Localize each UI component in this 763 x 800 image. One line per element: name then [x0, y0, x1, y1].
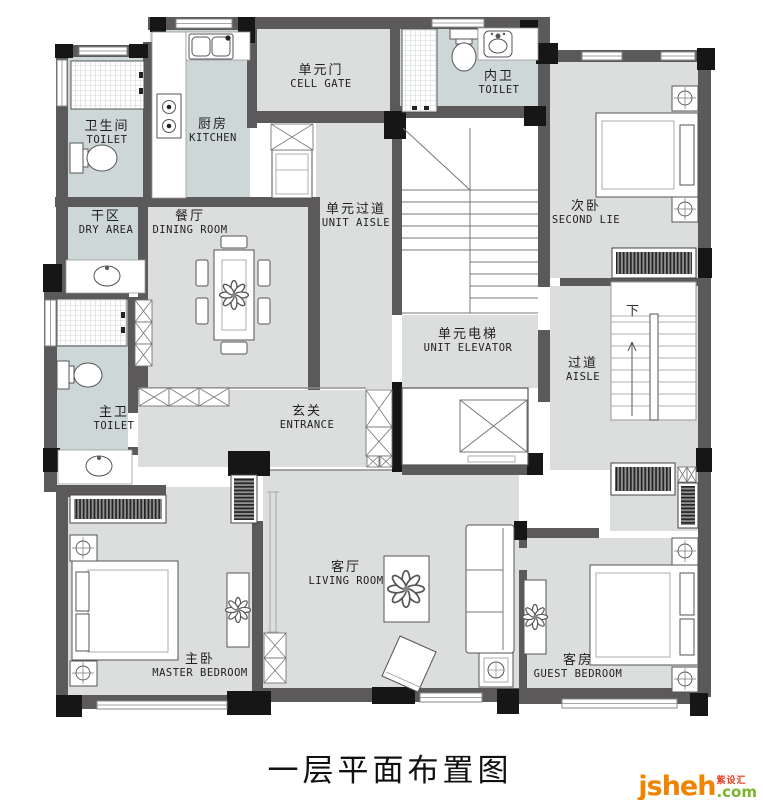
room-label-inner-toilet: 内卫 TOILET [479, 70, 520, 96]
inner-toilet-icon [450, 29, 478, 71]
room-label-master-bedroom-zh: 主卧 [152, 653, 248, 668]
watermark-tld: .com [716, 786, 757, 800]
room-label-inner-toilet-en: TOILET [479, 85, 520, 97]
stove-icon [157, 94, 181, 138]
room-label-entrance-zh: 玄关 [280, 405, 335, 420]
room-label-unit-elevator-en: UNIT ELEVATOR [424, 343, 513, 355]
room-label-cell-gate-zh: 单元门 [290, 64, 351, 79]
room-label-toilet1: 卫生间 TOILET [84, 120, 129, 146]
guest-bed [590, 565, 698, 665]
room-label-second-bedroom-zh: 次卧 [552, 200, 620, 215]
entry-cabinet-column [366, 390, 392, 467]
corridor-cabinet [271, 124, 313, 150]
second-bed [596, 113, 698, 197]
room-label-dining: 餐厅 DINING ROOM [152, 210, 227, 236]
master-bath-sink-icon [58, 450, 132, 484]
guest-cabinet [678, 467, 696, 482]
shower-icon [57, 299, 127, 346]
room-label-aisle: 过道 AISLE [566, 357, 600, 383]
entry-shoe-cabinet [231, 475, 257, 523]
room-label-cell-gate: 单元门 CELL GATE [290, 64, 351, 90]
room-label-dry-area-en: DRY AREA [79, 225, 134, 237]
unit-elevator-shaft [402, 388, 528, 465]
room-label-guest-bedroom: 客房 GUEST BEDROOM [534, 654, 623, 680]
toilet-icon [70, 143, 117, 173]
floor-plan-page: 卫生间 TOILET 厨房 KITCHEN 干区 DRY AREA 餐厅 DIN… [0, 0, 763, 800]
room-label-dry-area: 干区 DRY AREA [79, 210, 134, 236]
guest-bench [523, 580, 548, 654]
room-label-aisle-zh: 过道 [566, 357, 600, 372]
room-label-dining-en: DINING ROOM [152, 225, 227, 237]
second-wardrobe [612, 248, 696, 278]
room-label-toilet1-en: TOILET [84, 135, 129, 147]
kitchen-sink-icon [189, 34, 233, 59]
room-label-kitchen: 厨房 KITCHEN [189, 118, 237, 144]
coffee-table [384, 556, 429, 622]
room-label-master-toilet-zh: 主卫 [94, 406, 135, 421]
stairs-down-label: 下 [626, 300, 639, 319]
master-bench [226, 573, 251, 647]
inner-shower-icon [402, 29, 437, 112]
room-label-living-room-en: LIVING ROOM [308, 576, 383, 588]
room-label-inner-toilet-zh: 内卫 [479, 70, 520, 85]
room-label-unit-aisle-zh: 单元过道 [322, 203, 390, 218]
room-label-master-bedroom: 主卧 MASTER BEDROOM [152, 653, 248, 679]
room-label-entrance: 玄关 ENTRANCE [280, 405, 335, 431]
room-label-unit-aisle-en: UNIT AISLE [322, 218, 390, 230]
page-title: 一层平面布置图 [268, 745, 513, 790]
room-label-unit-elevator: 单元电梯 UNIT ELEVATOR [424, 328, 513, 354]
room-label-unit-elevator-zh: 单元电梯 [424, 328, 513, 343]
room-label-master-toilet-en: TOILET [94, 421, 135, 433]
room-label-dry-area-zh: 干区 [79, 210, 134, 225]
watermark-logo: jsheh 紫设汇 .com [638, 776, 757, 799]
room-label-second-bedroom-en: SECOND LIE [552, 215, 620, 227]
room-label-kitchen-en: KITCHEN [189, 133, 237, 145]
dining-side-cabinet [135, 300, 152, 366]
side-table [479, 653, 513, 687]
room-label-aisle-en: AISLE [566, 372, 600, 384]
master-wardrobe [70, 495, 166, 523]
room-label-cell-gate-en: CELL GATE [290, 79, 351, 91]
inner-sink-icon [478, 28, 538, 60]
room-label-unit-aisle: 单元过道 UNIT AISLE [322, 203, 390, 229]
room-label-kitchen-zh: 厨房 [189, 118, 237, 133]
room-label-master-toilet: 主卫 TOILET [94, 406, 135, 432]
room-label-dining-zh: 餐厅 [152, 210, 227, 225]
fridge-icon [272, 150, 312, 198]
hallway-cabinet-row [139, 388, 229, 406]
aisle-staircase [611, 282, 696, 420]
room-label-toilet1-zh: 卫生间 [84, 120, 129, 135]
room-label-guest-bedroom-zh: 客房 [534, 654, 623, 669]
room-label-living-room-zh: 客厅 [308, 561, 383, 576]
sofa [466, 525, 514, 653]
master-toilet-icon [57, 361, 102, 389]
living-side-cabinet [264, 633, 286, 683]
dry-area-sink-icon [66, 260, 145, 293]
room-label-entrance-en: ENTRANCE [280, 420, 335, 432]
watermark-name: jsheh [638, 776, 715, 799]
master-bed [72, 561, 178, 660]
room-label-master-bedroom-en: MASTER BEDROOM [152, 668, 248, 680]
room-label-guest-bedroom-en: GUEST BEDROOM [534, 669, 623, 681]
room-label-second-bedroom: 次卧 SECOND LIE [552, 200, 620, 226]
bathtub-icon [71, 61, 144, 109]
room-label-living-room: 客厅 LIVING ROOM [308, 561, 383, 587]
